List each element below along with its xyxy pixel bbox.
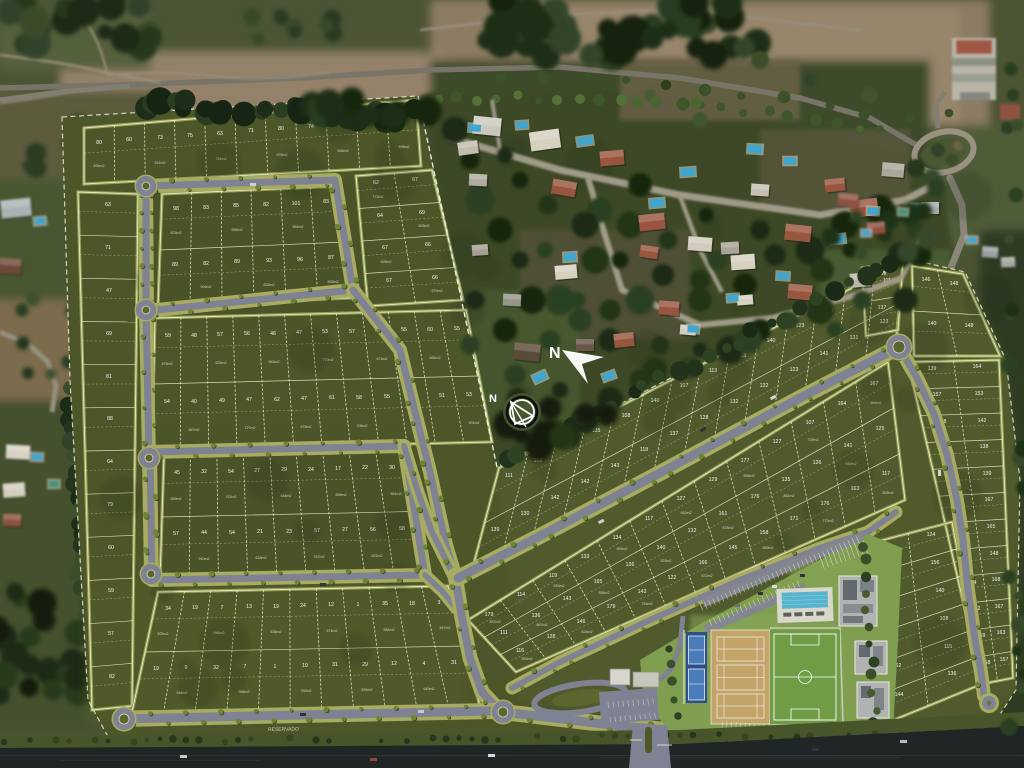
svg-text:167: 167 (995, 604, 1004, 610)
svg-text:31: 31 (332, 662, 338, 668)
svg-text:708m2: 708m2 (357, 424, 368, 428)
svg-text:824m2: 824m2 (582, 630, 593, 634)
svg-text:107: 107 (806, 420, 815, 426)
svg-text:176: 176 (821, 501, 830, 507)
svg-text:132: 132 (760, 383, 769, 389)
svg-text:101: 101 (292, 201, 301, 207)
svg-text:7: 7 (221, 605, 224, 611)
svg-text:21: 21 (257, 529, 263, 535)
svg-text:928m2: 928m2 (381, 260, 392, 264)
svg-text:884m2: 884m2 (430, 356, 441, 360)
svg-text:113: 113 (709, 368, 717, 374)
svg-text:N: N (549, 345, 561, 362)
svg-text:54: 54 (229, 530, 235, 536)
svg-text:872m2: 872m2 (702, 574, 713, 578)
svg-text:81: 81 (106, 374, 112, 380)
svg-text:168: 168 (992, 577, 1001, 583)
svg-text:132: 132 (688, 528, 697, 534)
svg-text:136: 136 (626, 562, 635, 568)
svg-text:689m2: 689m2 (171, 497, 182, 501)
svg-text:54: 54 (164, 399, 170, 405)
svg-text:7: 7 (244, 664, 247, 670)
svg-text:146: 146 (577, 619, 586, 625)
svg-text:67: 67 (382, 245, 388, 251)
svg-text:125: 125 (876, 426, 885, 432)
svg-text:171: 171 (790, 516, 799, 522)
svg-text:44: 44 (201, 530, 207, 536)
svg-text:17: 17 (335, 466, 341, 472)
svg-text:55: 55 (454, 326, 460, 332)
svg-text:89: 89 (234, 259, 240, 265)
svg-text:117: 117 (882, 471, 890, 477)
svg-text:130: 130 (521, 511, 530, 517)
svg-text:164: 164 (838, 401, 847, 407)
svg-text:85: 85 (233, 203, 239, 209)
svg-text:55: 55 (401, 327, 407, 333)
svg-text:659m2: 659m2 (763, 546, 774, 550)
svg-text:31: 31 (451, 660, 457, 666)
svg-text:140: 140 (657, 545, 666, 551)
svg-text:649m2: 649m2 (424, 687, 435, 691)
svg-text:96: 96 (297, 257, 303, 263)
svg-text:60: 60 (126, 137, 132, 143)
svg-text:636m2: 636m2 (271, 630, 282, 634)
svg-text:578m2: 578m2 (723, 526, 734, 530)
svg-text:140: 140 (767, 338, 776, 344)
svg-text:40: 40 (191, 399, 197, 405)
svg-text:124: 124 (927, 532, 936, 538)
svg-text:57: 57 (108, 631, 114, 637)
svg-text:166: 166 (699, 560, 708, 566)
svg-text:62: 62 (274, 397, 280, 403)
svg-text:51: 51 (439, 393, 445, 399)
svg-text:525m2: 525m2 (216, 361, 227, 365)
svg-text:138: 138 (980, 444, 989, 450)
svg-text:69: 69 (419, 210, 425, 216)
svg-text:941m2: 941m2 (155, 161, 166, 165)
svg-text:47: 47 (106, 288, 112, 294)
svg-text:692m2: 692m2 (328, 280, 339, 284)
svg-text:64: 64 (107, 459, 113, 465)
svg-text:584m2: 584m2 (384, 628, 395, 632)
svg-text:1: 1 (357, 602, 360, 608)
svg-text:129: 129 (709, 477, 718, 483)
svg-text:729m2: 729m2 (808, 438, 819, 442)
svg-text:57: 57 (217, 332, 223, 338)
svg-text:63: 63 (217, 131, 223, 137)
svg-text:832m2: 832m2 (264, 283, 275, 287)
svg-text:136: 136 (532, 613, 541, 619)
svg-text:179: 179 (607, 604, 616, 610)
svg-text:75: 75 (187, 133, 193, 139)
svg-text:111: 111 (505, 473, 513, 479)
svg-text:55: 55 (384, 394, 390, 400)
svg-text:19: 19 (302, 663, 308, 669)
svg-text:64: 64 (377, 213, 383, 219)
svg-text:83: 83 (203, 205, 209, 211)
svg-text:825m2: 825m2 (158, 632, 169, 636)
svg-text:143: 143 (611, 463, 620, 469)
svg-text:108: 108 (622, 413, 631, 419)
svg-text:93: 93 (266, 258, 272, 264)
svg-text:71: 71 (248, 128, 254, 134)
svg-text:137: 137 (670, 431, 679, 437)
svg-text:67: 67 (386, 278, 392, 284)
svg-text:87: 87 (328, 255, 334, 261)
svg-text:655m2: 655m2 (617, 547, 628, 551)
svg-text:158: 158 (760, 530, 769, 536)
svg-text:18: 18 (409, 601, 415, 607)
svg-text:177: 177 (741, 458, 750, 464)
svg-text:128: 128 (547, 634, 556, 640)
svg-text:4: 4 (423, 661, 426, 667)
svg-text:642m2: 642m2 (681, 511, 692, 515)
svg-text:970m2: 970m2 (432, 289, 443, 293)
svg-text:66: 66 (432, 275, 438, 281)
svg-text:821m2: 821m2 (372, 554, 383, 558)
svg-text:139: 139 (491, 527, 500, 533)
svg-text:873m2: 873m2 (377, 357, 388, 361)
svg-text:53: 53 (466, 392, 472, 398)
svg-text:74: 74 (308, 124, 314, 130)
svg-text:80: 80 (96, 140, 102, 146)
svg-text:156: 156 (931, 560, 940, 566)
svg-text:142: 142 (551, 495, 560, 501)
svg-text:772m2: 772m2 (823, 519, 834, 523)
svg-text:27: 27 (342, 527, 348, 533)
svg-text:826m2: 826m2 (883, 491, 894, 495)
svg-text:142: 142 (581, 479, 590, 485)
svg-text:143: 143 (563, 596, 572, 602)
svg-text:558m2: 558m2 (744, 474, 755, 478)
svg-text:49: 49 (219, 398, 225, 404)
svg-text:66: 66 (425, 242, 431, 248)
svg-text:667m2: 667m2 (537, 623, 548, 627)
svg-text:116: 116 (516, 648, 524, 654)
svg-text:910m2: 910m2 (199, 557, 210, 561)
svg-text:879m2: 879m2 (162, 362, 173, 366)
svg-text:12: 12 (328, 602, 334, 608)
svg-text:118: 118 (640, 447, 648, 453)
svg-text:142: 142 (978, 418, 987, 424)
svg-text:19: 19 (192, 605, 198, 611)
svg-text:56: 56 (244, 331, 250, 337)
svg-text:956m2: 956m2 (232, 228, 243, 232)
svg-text:34: 34 (165, 606, 171, 612)
svg-text:82: 82 (109, 674, 115, 680)
svg-text:122: 122 (668, 575, 677, 581)
svg-text:167: 167 (985, 497, 994, 503)
svg-text:127: 127 (773, 439, 782, 445)
svg-text:923m2: 923m2 (661, 559, 672, 563)
svg-text:1: 1 (274, 664, 277, 670)
svg-text:157: 157 (1000, 657, 1009, 663)
svg-text:674m2: 674m2 (327, 629, 338, 633)
svg-text:581m2: 581m2 (391, 492, 402, 496)
svg-text:89: 89 (172, 262, 178, 268)
svg-text:134: 134 (613, 535, 622, 541)
svg-text:744m2: 744m2 (642, 602, 653, 606)
svg-text:73: 73 (157, 135, 163, 141)
svg-text:133: 133 (581, 554, 590, 560)
svg-text:161: 161 (719, 511, 728, 517)
svg-text:24: 24 (308, 467, 314, 473)
svg-text:82: 82 (263, 202, 269, 208)
svg-text:165: 165 (594, 579, 603, 585)
svg-text:148: 148 (990, 551, 999, 557)
svg-text:135: 135 (782, 477, 791, 483)
svg-text:136: 136 (948, 671, 957, 677)
svg-text:RESERVADO: RESERVADO (268, 726, 299, 733)
svg-text:563m2: 563m2 (269, 360, 280, 364)
svg-text:564m2: 564m2 (293, 225, 304, 229)
svg-text:127: 127 (677, 496, 686, 502)
svg-text:98: 98 (173, 206, 179, 212)
svg-text:111: 111 (500, 630, 508, 636)
svg-text:24: 24 (300, 603, 306, 609)
svg-text:676m2: 676m2 (301, 425, 312, 429)
svg-text:60: 60 (108, 545, 114, 551)
svg-text:767m2: 767m2 (314, 555, 325, 559)
svg-text:148: 148 (965, 323, 974, 329)
svg-text:59: 59 (108, 588, 114, 594)
svg-text:126: 126 (813, 460, 822, 466)
svg-text:82: 82 (203, 261, 209, 267)
svg-text:N: N (489, 393, 497, 405)
svg-text:141: 141 (820, 351, 829, 357)
svg-text:57: 57 (173, 531, 179, 537)
svg-text:22: 22 (362, 465, 368, 471)
svg-text:694m2: 694m2 (94, 164, 105, 168)
svg-text:823m2: 823m2 (171, 231, 182, 235)
svg-text:694m2: 694m2 (362, 688, 373, 692)
svg-text:139: 139 (983, 471, 992, 477)
svg-text:910m2: 910m2 (554, 584, 565, 588)
svg-text:54: 54 (228, 469, 234, 475)
svg-text:47: 47 (301, 396, 307, 402)
svg-text:46: 46 (270, 331, 276, 337)
svg-text:58: 58 (356, 395, 362, 401)
svg-text:901m2: 901m2 (469, 421, 480, 425)
svg-text:144: 144 (895, 692, 904, 698)
svg-text:23: 23 (286, 529, 292, 535)
svg-text:143: 143 (638, 589, 647, 595)
svg-text:904m2: 904m2 (201, 285, 212, 289)
svg-text:48: 48 (191, 333, 197, 339)
svg-text:60: 60 (427, 327, 433, 333)
svg-text:119: 119 (549, 573, 557, 579)
svg-text:752m2: 752m2 (226, 495, 237, 499)
svg-text:179: 179 (485, 612, 494, 618)
svg-text:69: 69 (106, 331, 112, 337)
svg-text:114: 114 (517, 592, 525, 598)
svg-text:71: 71 (105, 245, 111, 251)
svg-text:123: 123 (790, 367, 799, 373)
svg-text:140: 140 (936, 588, 945, 594)
svg-text:117: 117 (645, 516, 653, 522)
svg-text:32: 32 (201, 469, 207, 475)
svg-text:550m2: 550m2 (522, 657, 533, 661)
svg-text:851m2: 851m2 (784, 494, 795, 498)
svg-text:145: 145 (729, 545, 738, 551)
svg-text:45: 45 (174, 470, 180, 476)
svg-text:61: 61 (329, 395, 335, 401)
svg-text:3: 3 (438, 600, 441, 606)
svg-text:727m2: 727m2 (245, 426, 256, 430)
svg-text:628m2: 628m2 (419, 224, 430, 228)
svg-text:164: 164 (973, 364, 982, 370)
svg-text:148: 148 (950, 281, 959, 287)
svg-text:176: 176 (751, 494, 760, 500)
svg-text:556m2: 556m2 (599, 591, 610, 595)
svg-text:59: 59 (165, 333, 171, 339)
svg-text:12: 12 (391, 661, 397, 667)
svg-text:19: 19 (153, 666, 159, 672)
svg-text:47: 47 (246, 397, 252, 403)
svg-text:547m2: 547m2 (440, 626, 451, 630)
svg-text:837m2: 837m2 (490, 620, 501, 624)
svg-text:19: 19 (273, 604, 279, 610)
svg-text:153: 153 (975, 391, 984, 397)
svg-text:146: 146 (922, 277, 931, 283)
svg-text:63: 63 (105, 202, 111, 208)
svg-text:760m2: 760m2 (301, 689, 312, 693)
svg-text:567m2: 567m2 (189, 428, 200, 432)
svg-text:157: 157 (933, 392, 942, 398)
svg-text:30: 30 (389, 465, 395, 471)
svg-text:83: 83 (323, 199, 329, 205)
svg-text:57: 57 (349, 329, 355, 335)
svg-text:88: 88 (107, 416, 113, 422)
svg-text:165: 165 (987, 524, 996, 530)
svg-text:598m2: 598m2 (338, 149, 349, 153)
svg-text:35: 35 (382, 601, 388, 607)
svg-text:80: 80 (278, 126, 284, 132)
svg-text:13: 13 (246, 604, 252, 610)
svg-text:618m2: 618m2 (256, 556, 267, 560)
svg-text:128: 128 (700, 415, 709, 421)
svg-text:163: 163 (997, 630, 1006, 636)
svg-text:889m2: 889m2 (336, 493, 347, 497)
